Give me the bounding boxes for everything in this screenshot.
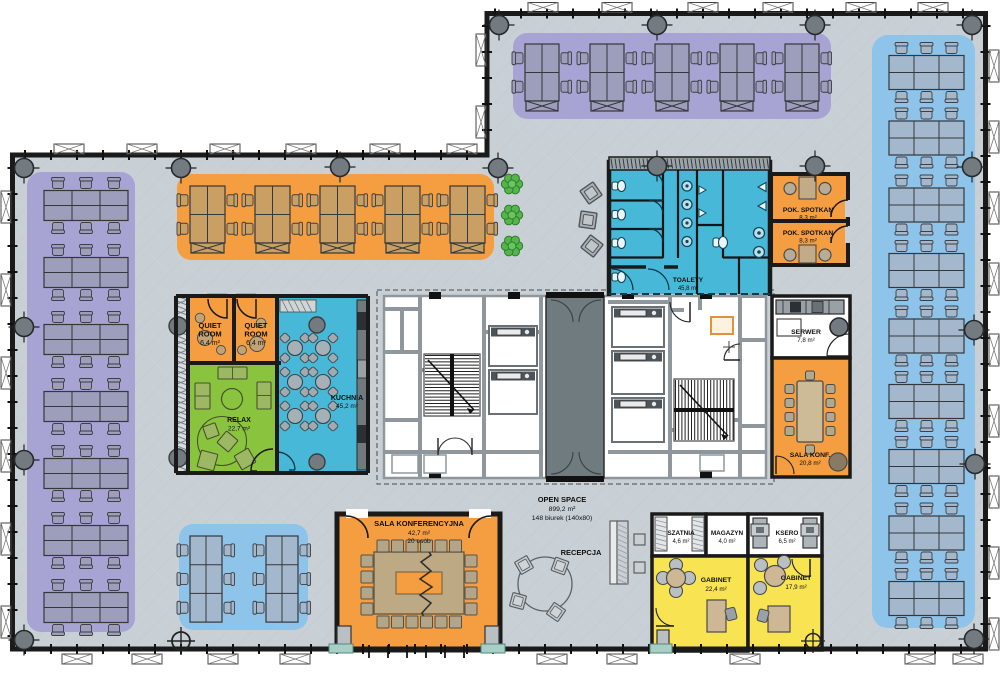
svg-text:POK. SPOTKAN: POK. SPOTKAN [783,207,833,214]
svg-text:45,2 m²: 45,2 m² [336,403,359,410]
svg-text:GABINET: GABINET [701,577,732,584]
svg-text:KUCHNIA: KUCHNIA [331,395,363,402]
svg-text:17,9 m²: 17,9 m² [785,584,806,591]
svg-text:45,8 m²: 45,8 m² [678,286,698,292]
svg-text:7,8 m²: 7,8 m² [797,337,815,344]
svg-text:6,4 m²: 6,4 m² [200,340,221,347]
svg-text:22,7 m²: 22,7 m² [228,426,251,433]
svg-text:ROOM: ROOM [244,330,267,339]
svg-text:4,0 m²: 4,0 m² [718,539,735,545]
svg-text:SALA KONFERENCYJNA: SALA KONFERENCYJNA [374,519,464,528]
svg-text:42,7 m²: 42,7 m² [408,530,431,537]
svg-text:SZATNIA: SZATNIA [667,530,695,537]
svg-text:MAGAZYN: MAGAZYN [711,530,744,537]
svg-text:OPEN SPACE: OPEN SPACE [538,495,587,504]
svg-text:8,3 m²: 8,3 m² [799,238,817,245]
svg-text:20,8 m²: 20,8 m² [799,460,820,467]
svg-text:RELAX: RELAX [227,417,251,424]
svg-text:6,4 m²: 6,4 m² [246,340,267,347]
svg-text:20 osób: 20 osób [407,538,431,545]
svg-text:SERWER: SERWER [791,329,821,336]
svg-text:POK. SPOTKAN: POK. SPOTKAN [783,230,833,237]
svg-text:RECEPCJA: RECEPCJA [561,548,602,557]
svg-text:ROOM: ROOM [198,330,221,339]
svg-text:8,3 m²: 8,3 m² [799,215,817,222]
svg-text:6,5 m²: 6,5 m² [778,539,795,545]
svg-text:TOALETY: TOALETY [673,277,704,284]
svg-text:4,6 m²: 4,6 m² [672,539,689,545]
svg-text:148 biurek (140x80): 148 biurek (140x80) [532,515,592,522]
svg-text:22,4 m²: 22,4 m² [705,586,726,593]
svg-text:899,2 m²: 899,2 m² [549,506,577,513]
svg-text:SALA KONF.: SALA KONF. [790,452,831,459]
svg-text:KSERO: KSERO [776,530,799,537]
svg-text:GABINET: GABINET [781,575,812,582]
